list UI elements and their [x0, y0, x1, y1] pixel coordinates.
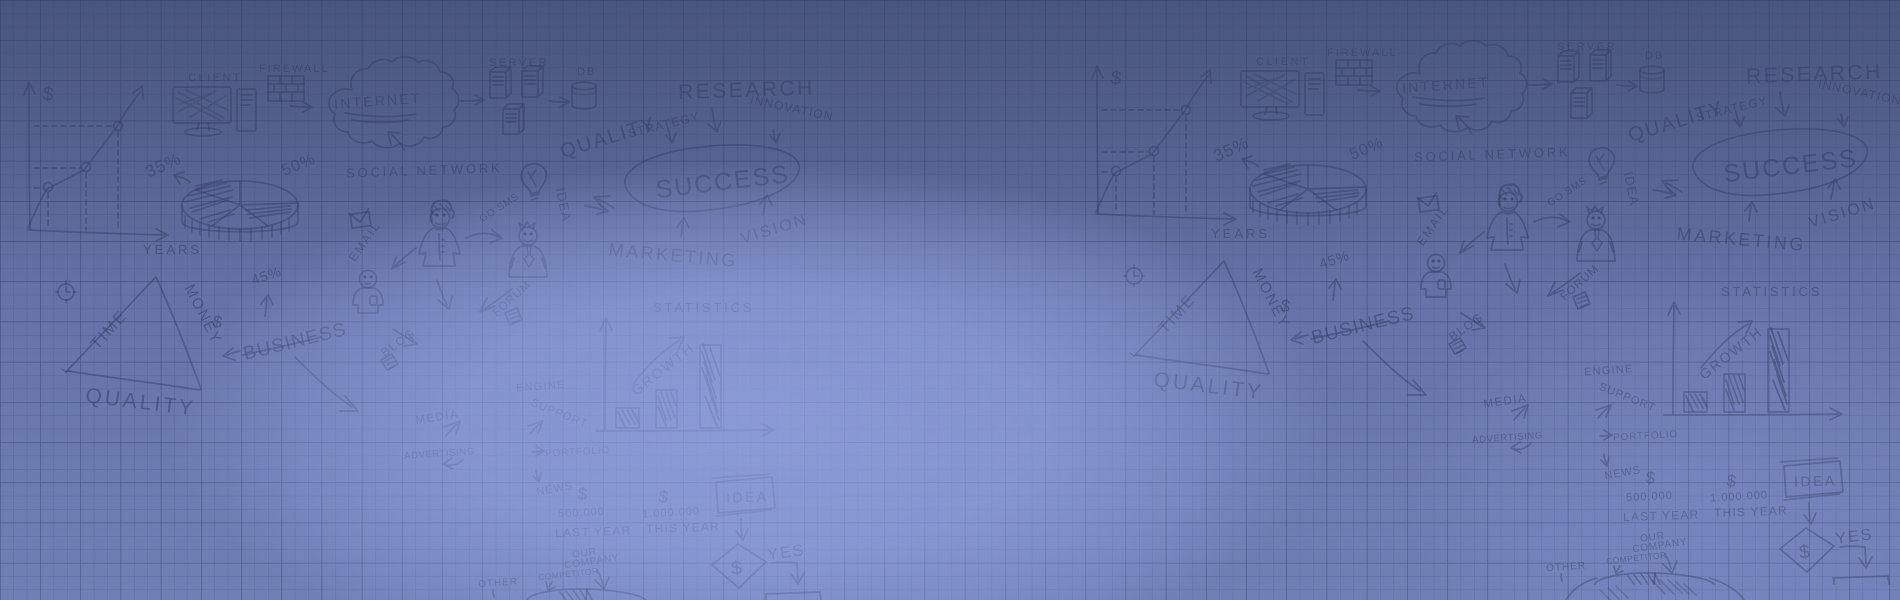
svg-text:DB: DB: [577, 66, 596, 78]
svg-text:CLIENT: CLIENT: [188, 72, 242, 84]
svg-text:FIREWALL: FIREWALL: [259, 63, 330, 75]
svg-text:RESEARCH: RESEARCH: [678, 76, 815, 104]
svg-text:YEARS: YEARS: [143, 242, 202, 257]
